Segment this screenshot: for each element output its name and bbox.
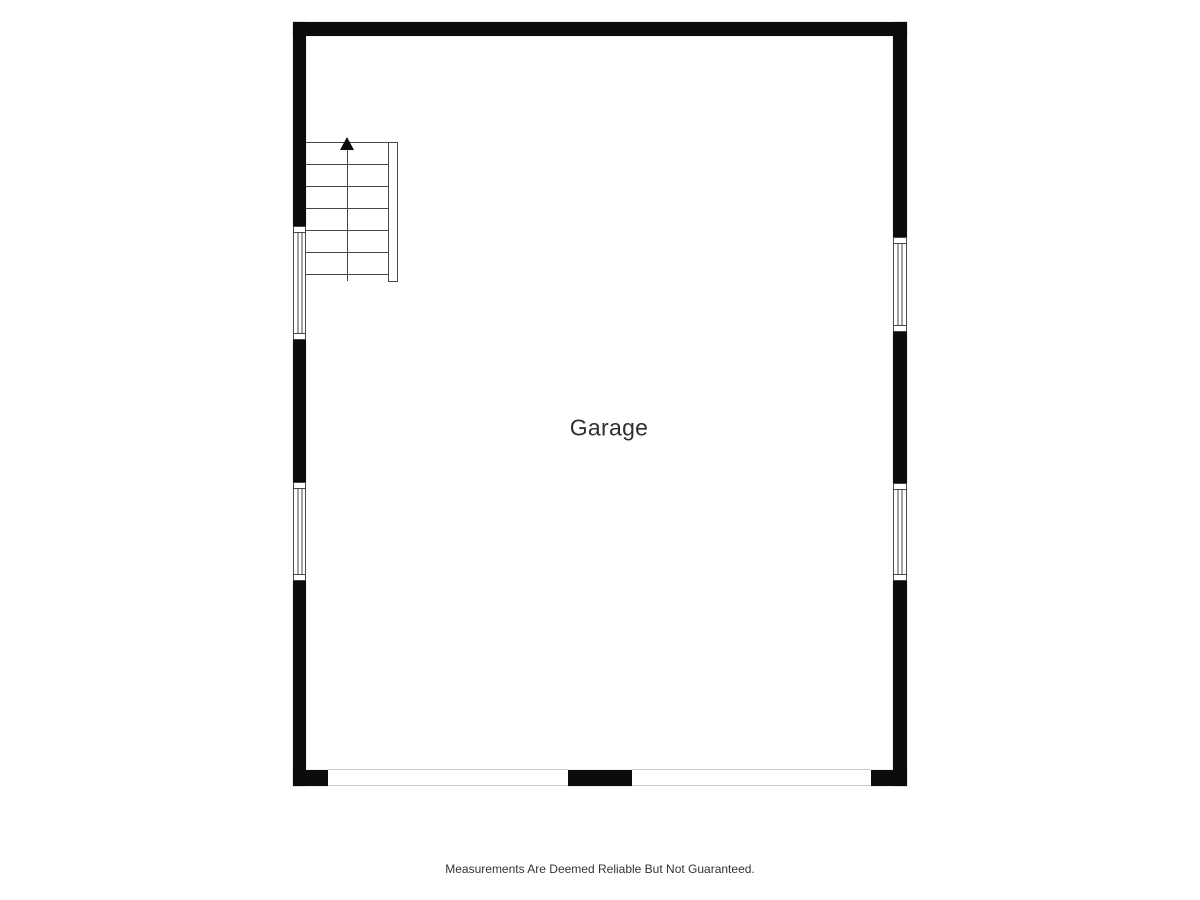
window-right-upper <box>893 237 907 332</box>
window-frame-cap <box>894 325 906 331</box>
room-label-garage: Garage <box>570 415 649 442</box>
window-glass-pane <box>297 233 302 333</box>
window-glass-pane <box>898 244 903 325</box>
window-glass-pane <box>297 489 302 574</box>
staircase <box>306 142 397 283</box>
wall-right-middle <box>893 332 907 483</box>
window-frame-cap <box>894 574 906 580</box>
wall-right-upper <box>893 22 907 237</box>
wall-left-lower <box>293 581 306 786</box>
wall-left-upper <box>293 22 306 226</box>
window-frame-cap <box>294 574 305 580</box>
measurements-disclaimer: Measurements Are Deemed Reliable But Not… <box>445 862 755 876</box>
window-glass-pane <box>898 490 903 574</box>
wall-bottom-middle-pier <box>568 770 632 786</box>
wall-top <box>293 22 907 36</box>
wall-bottom-right-stub <box>871 770 907 786</box>
window-left-upper <box>293 226 306 340</box>
window-left-lower <box>293 482 306 581</box>
wall-left-middle <box>293 340 306 482</box>
window-frame-cap <box>294 333 305 339</box>
wall-bottom-left-stub <box>293 770 328 786</box>
garage-door-opening-left <box>328 769 568 786</box>
floor-plan-canvas: Garage Measurements Are Deemed Reliable … <box>0 0 1200 900</box>
wall-right-lower <box>893 581 907 786</box>
stairs-up-arrow-icon <box>340 137 354 150</box>
window-right-lower <box>893 483 907 581</box>
garage-door-opening-right <box>632 769 871 786</box>
stair-direction-line <box>347 142 348 281</box>
stair-rail <box>388 142 398 282</box>
